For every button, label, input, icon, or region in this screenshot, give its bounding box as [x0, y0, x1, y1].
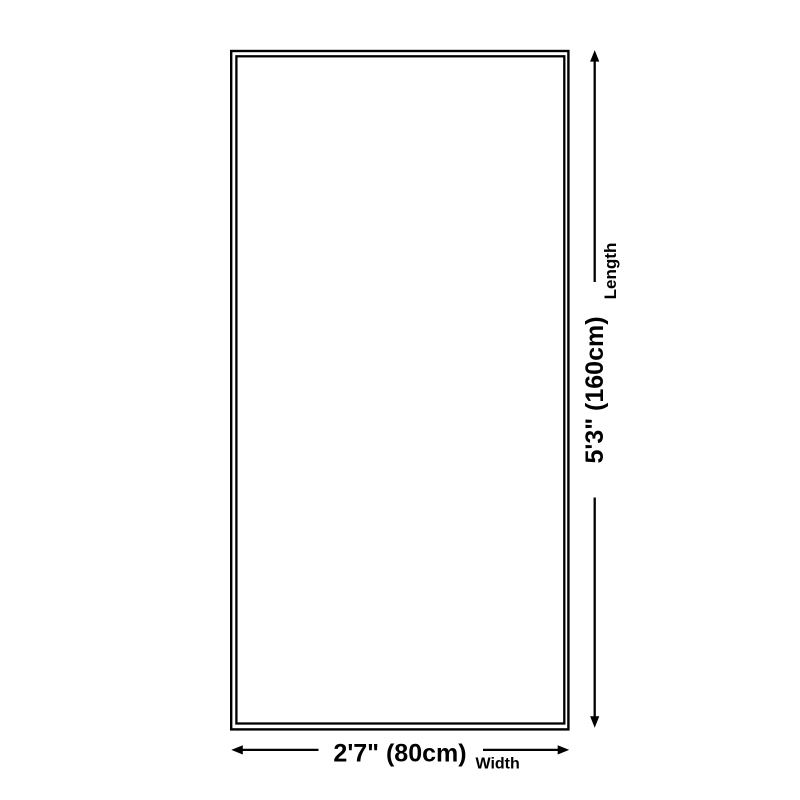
svg-text:2'7" (80cm): 2'7" (80cm)	[333, 739, 466, 767]
svg-text:Width: Width	[476, 756, 520, 773]
svg-text:Length: Length	[601, 243, 620, 300]
svg-text:5'3" (160cm): 5'3" (160cm)	[581, 316, 609, 463]
